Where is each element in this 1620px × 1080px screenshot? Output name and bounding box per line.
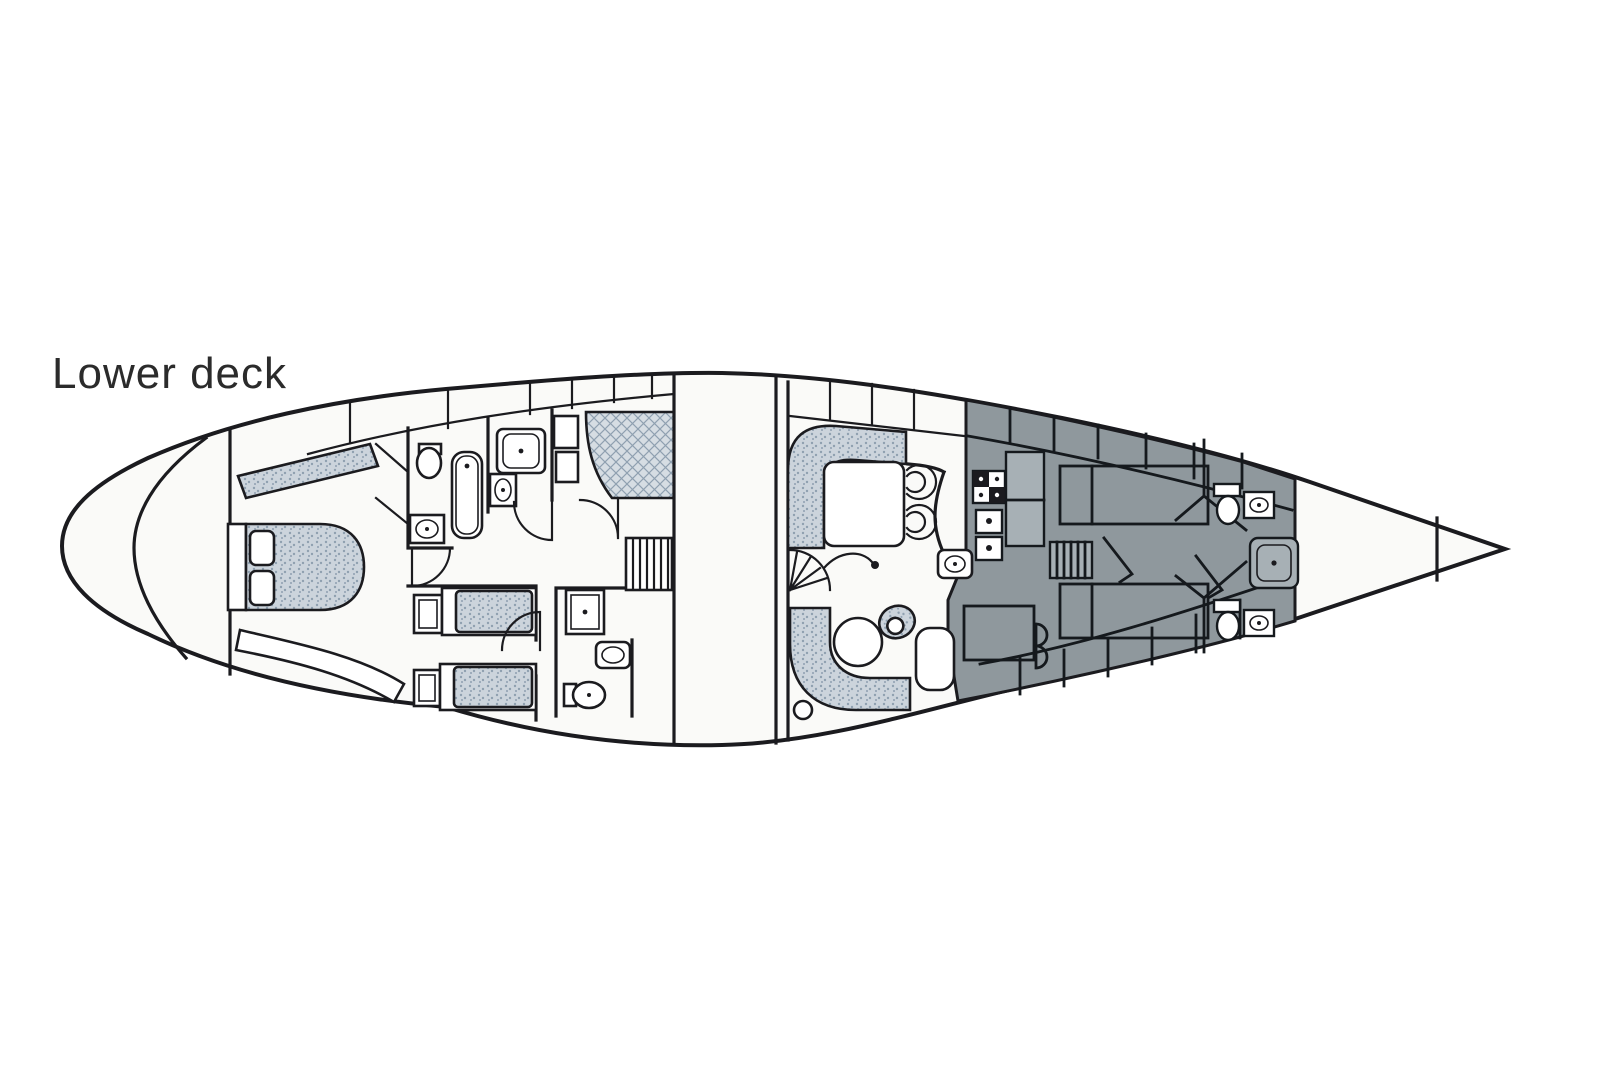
lower-deck-plan: Lower deck: [0, 0, 1620, 1080]
locker: [554, 416, 578, 448]
headboard: [228, 524, 246, 610]
crew-shower: [1250, 538, 1298, 588]
deck-plan-drawing: Lower deck: [0, 0, 1620, 1080]
shower: [497, 429, 545, 473]
bathtub: [452, 452, 482, 538]
toilet-tank: [1214, 484, 1240, 496]
stool: [794, 701, 812, 719]
toilet-tank: [1214, 600, 1240, 612]
galley-stove: [973, 471, 1005, 503]
deck-title: Lower deck: [52, 349, 287, 398]
twin-bed-upper: [414, 588, 536, 635]
owner-double-bed: [228, 524, 364, 610]
pillow: [250, 531, 274, 565]
toilet: [564, 682, 605, 708]
locker: [556, 452, 578, 482]
console: [916, 628, 954, 690]
sink: [596, 642, 630, 668]
pillow: [250, 571, 274, 605]
galley-crew-area: [948, 400, 1298, 701]
pantry-sink: [938, 550, 972, 578]
toilet: [417, 448, 441, 478]
companionway-stairs: [626, 538, 672, 590]
toilet: [1217, 612, 1239, 640]
toilet: [1217, 496, 1239, 524]
shower: [566, 590, 604, 634]
dining-table: [824, 462, 904, 546]
sink: [490, 474, 516, 506]
coffee-table: [834, 618, 882, 666]
sink: [410, 515, 444, 543]
twin-bed-lower: [414, 664, 536, 710]
galley-steps: [1050, 542, 1092, 578]
